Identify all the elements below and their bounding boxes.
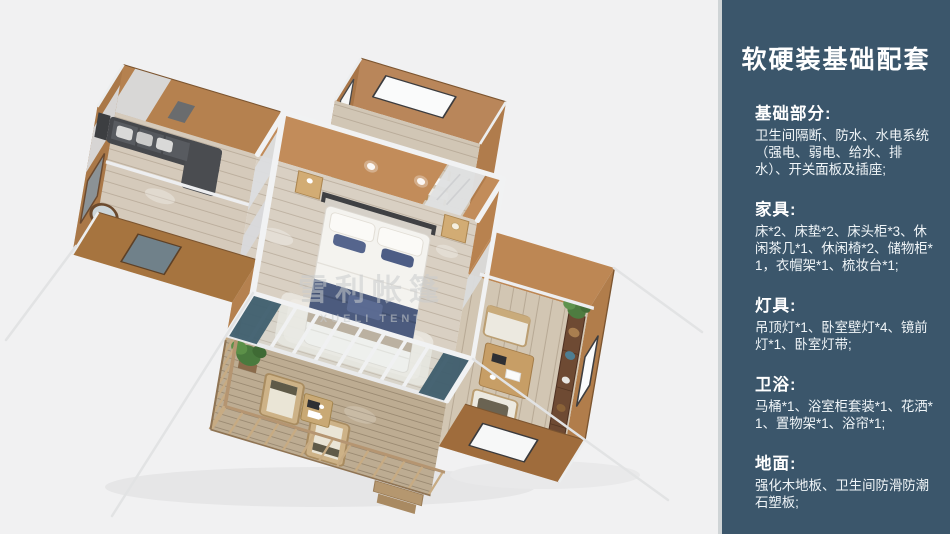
floorplan-3d-render: 雪利帐篷 XUELI TENT: [0, 0, 718, 534]
section-heading: 家具:: [755, 196, 935, 220]
sidebar: 软硬装基础配套 基础部分: 卫生间隔断、防水、水电系统（强电、弱电、给水、排水）…: [722, 0, 950, 534]
section-heading: 地面:: [755, 450, 935, 474]
section-basics: 基础部分: 卫生间隔断、防水、水电系统（强电、弱电、给水、排水）、开关面板及插座…: [755, 100, 935, 178]
watermark: 雪利帐篷 XUELI TENT: [298, 274, 446, 325]
section-heading: 灯具:: [755, 292, 935, 316]
section-body: 床*2、床垫*2、床头柜*3、休闲茶几*1、休闲椅*2、储物柜*1，衣帽架*1、…: [755, 223, 935, 274]
watermark-cn: 雪利帐篷: [298, 274, 446, 307]
sidebar-title: 软硬装基础配套: [722, 40, 950, 76]
screenshot-root: 雪利帐篷 XUELI TENT 软硬装基础配套 基础部分: 卫生间隔断、防水、水…: [0, 0, 950, 534]
watermark-latin: XUELI TENT: [320, 313, 424, 325]
section-body: 马桶*1、浴室柜套装*1、花洒*1、置物架*1、浴帘*1;: [755, 398, 935, 432]
section-bathroom: 卫浴: 马桶*1、浴室柜套装*1、花洒*1、置物架*1、浴帘*1;: [755, 371, 935, 432]
section-body: 卫生间隔断、防水、水电系统（强电、弱电、给水、排水）、开关面板及插座;: [755, 127, 935, 178]
section-lighting: 灯具: 吊顶灯*1、卧室壁灯*4、镜前灯*1、卧室灯带;: [755, 292, 935, 353]
section-body: 吊顶灯*1、卧室壁灯*4、镜前灯*1、卧室灯带;: [755, 319, 935, 353]
section-furniture: 家具: 床*2、床垫*2、床头柜*3、休闲茶几*1、休闲椅*2、储物柜*1，衣帽…: [755, 196, 935, 274]
section-body: 强化木地板、卫生间防滑防潮石塑板;: [755, 477, 935, 511]
section-heading: 基础部分:: [755, 100, 935, 124]
section-heading: 卫浴:: [755, 371, 935, 395]
section-flooring: 地面: 强化木地板、卫生间防滑防潮石塑板;: [755, 450, 935, 511]
render-area: 雪利帐篷 XUELI TENT: [0, 0, 718, 534]
